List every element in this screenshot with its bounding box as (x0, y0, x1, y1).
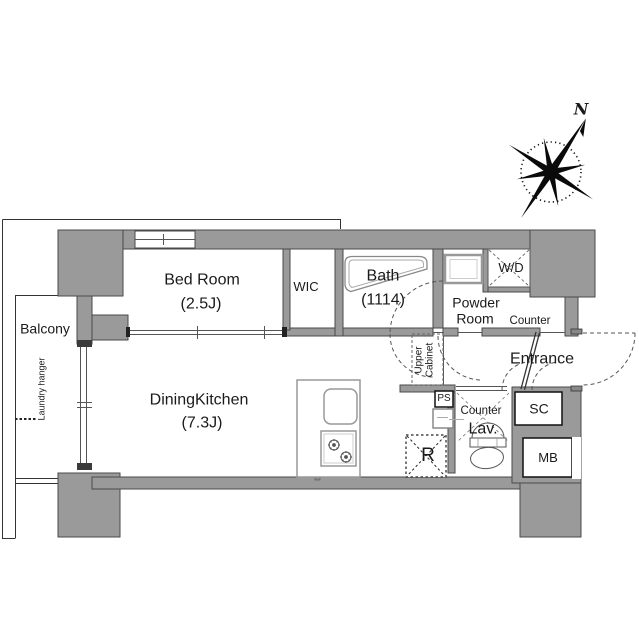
window-icon (135, 231, 195, 248)
pipe-space-label: PS (437, 394, 450, 405)
washbasin-icon (445, 255, 482, 283)
dining-kitchen-size-label: (7.3J) (182, 416, 223, 433)
powder-counter-label: Counter (510, 315, 551, 327)
floor-plan: N Bed Room (2.5J) WIC Bath (1114) Powder… (0, 0, 639, 640)
dining-kitchen-label: DiningKitchen (150, 393, 249, 410)
upper-cabinet-label-line1: Upper (414, 346, 425, 373)
shoe-closet-label: SC (529, 402, 548, 417)
lavatory-label: Lav. (468, 422, 497, 439)
sliding-partition-icon (126, 326, 287, 339)
bath-label: Bath (367, 269, 400, 286)
lav-counter-label: Counter (461, 405, 502, 417)
meter-box-label: MB (538, 451, 558, 465)
powder-room-label-line1: Powder (452, 296, 499, 311)
lav-counter-icon (433, 409, 464, 428)
kitchen-counter-icon (297, 380, 360, 477)
upper-cabinet-label-line2: Cabinet (424, 343, 435, 377)
balcony-label: Balcony (20, 322, 70, 337)
powder-room-label-line2: Room (456, 312, 493, 327)
balcony-sliding-door-icon (77, 347, 92, 463)
compass-rose-icon (507, 116, 595, 220)
wic-label: WIC (293, 280, 318, 294)
upper-cabinet-label: Upper Cabinet (415, 343, 436, 377)
compass-north-label: N (574, 102, 589, 119)
washer-dryer-label: W/D (498, 261, 523, 275)
meter-box-gap (572, 437, 581, 479)
refrigerator-label: R (421, 446, 435, 466)
bedroom-size-label: (2.5J) (181, 297, 222, 314)
balcony-door-caps (77, 340, 92, 470)
bedroom-label: Bed Room (164, 273, 240, 290)
laundry-hanger-label: Laundry hanger (37, 357, 46, 420)
entrance-label: Entrance (510, 352, 574, 369)
bath-size-label: (1114) (361, 293, 405, 310)
